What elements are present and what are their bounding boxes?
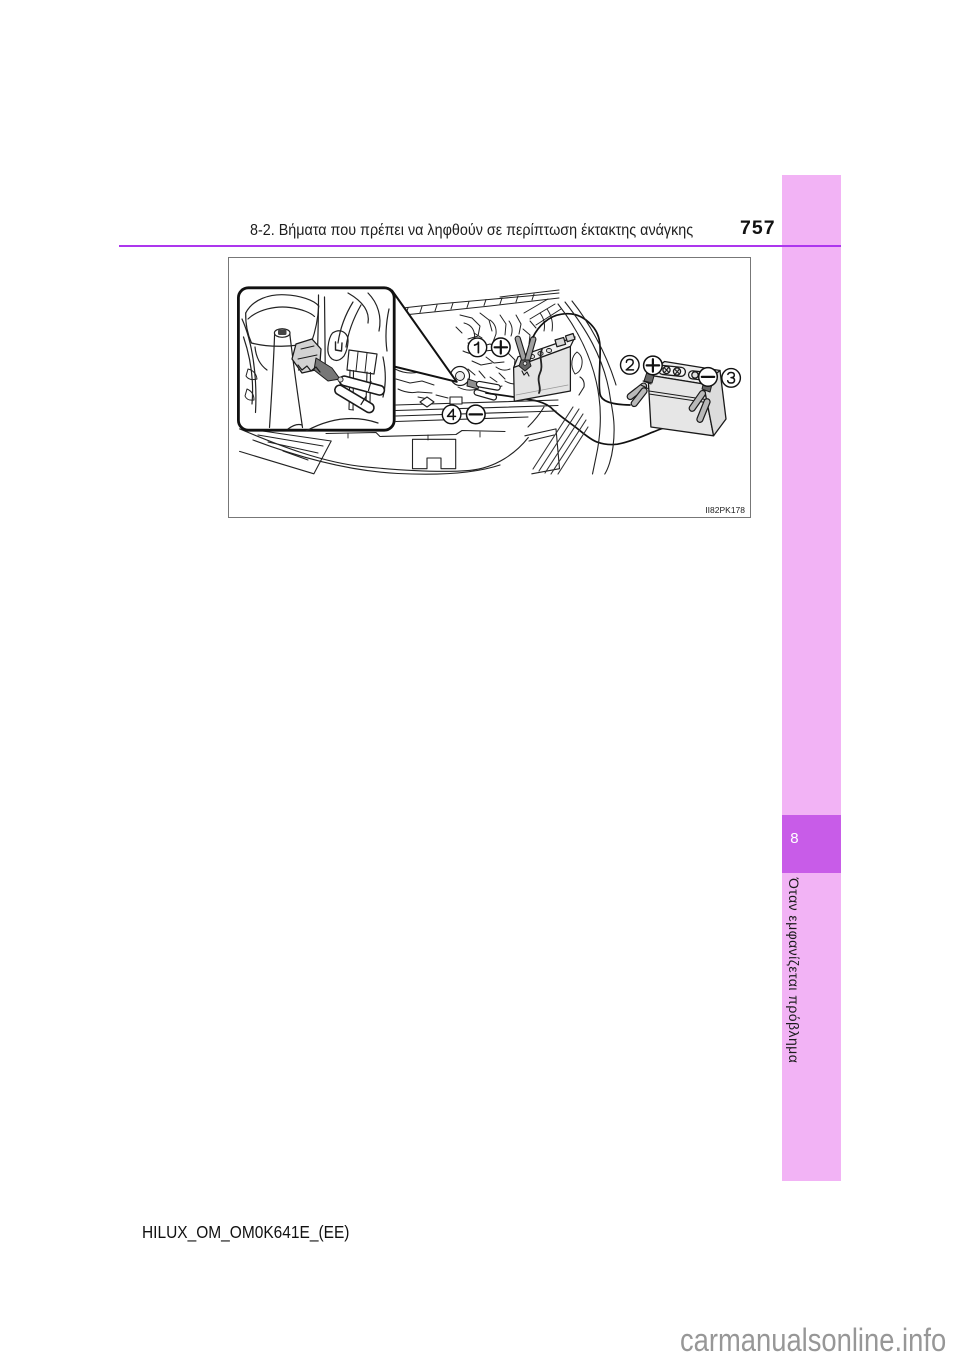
svg-text:II82PK178: II82PK178	[705, 505, 745, 515]
